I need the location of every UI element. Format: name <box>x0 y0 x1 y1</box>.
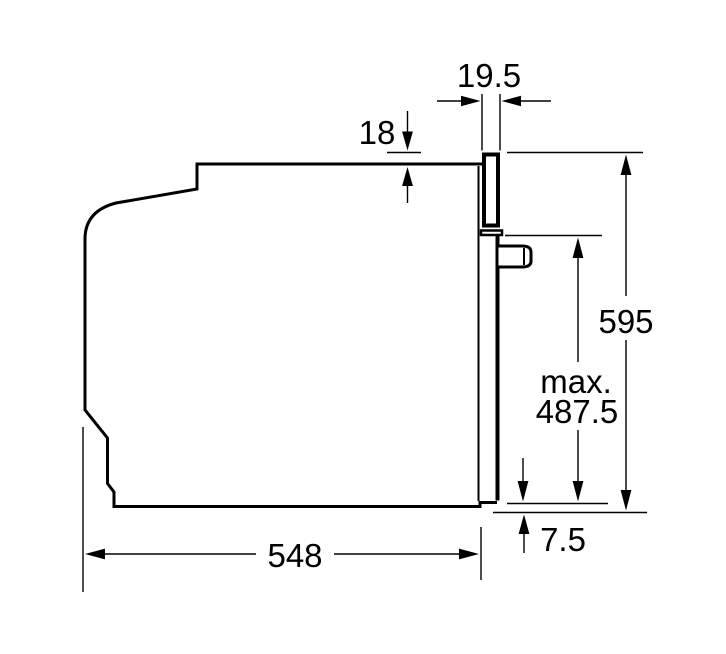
door-front-flange <box>481 231 502 236</box>
arrow-up-icon <box>621 155 632 176</box>
arrow-right-icon <box>461 96 481 107</box>
arrow-left-icon <box>502 96 522 107</box>
dimension-label-595: 595 <box>598 303 653 340</box>
hinge-pin <box>497 246 531 267</box>
diagram-canvas: 19.5 18 595 max. 487.5 <box>0 0 726 654</box>
arrow-up-icon <box>519 515 530 535</box>
dimension-label-548: 548 <box>267 537 322 574</box>
extension-lines <box>83 94 647 592</box>
oven-body <box>85 164 497 507</box>
arrow-down-icon <box>402 132 413 151</box>
dimension-548: 548 <box>85 537 479 574</box>
arrow-right-icon <box>459 549 479 560</box>
door-front <box>481 155 531 501</box>
oven-installation-diagram: 19.5 18 595 max. 487.5 <box>0 0 726 654</box>
arrow-down-icon <box>518 481 529 502</box>
dimension-595: 595 <box>598 155 653 511</box>
door-front-top-section <box>484 155 498 226</box>
dimension-7-5: 7.5 <box>518 458 586 558</box>
oven-body-outline <box>85 164 497 507</box>
arrow-down-icon <box>621 490 632 511</box>
dimension-label-487-5: 487.5 <box>536 393 619 430</box>
dimension-label-18: 18 <box>359 114 396 151</box>
arrow-left-icon <box>85 549 105 560</box>
dimension-label-19-5: 19.5 <box>457 57 521 94</box>
dimension-18: 18 <box>359 111 413 203</box>
arrow-up-icon <box>402 167 413 186</box>
dimension-max-487-5: max. 487.5 <box>536 238 619 502</box>
arrow-up-icon <box>573 238 584 259</box>
arrow-down-icon <box>573 481 584 502</box>
dimension-label-7-5: 7.5 <box>540 521 586 558</box>
dimension-19-5: 19.5 <box>437 57 551 106</box>
